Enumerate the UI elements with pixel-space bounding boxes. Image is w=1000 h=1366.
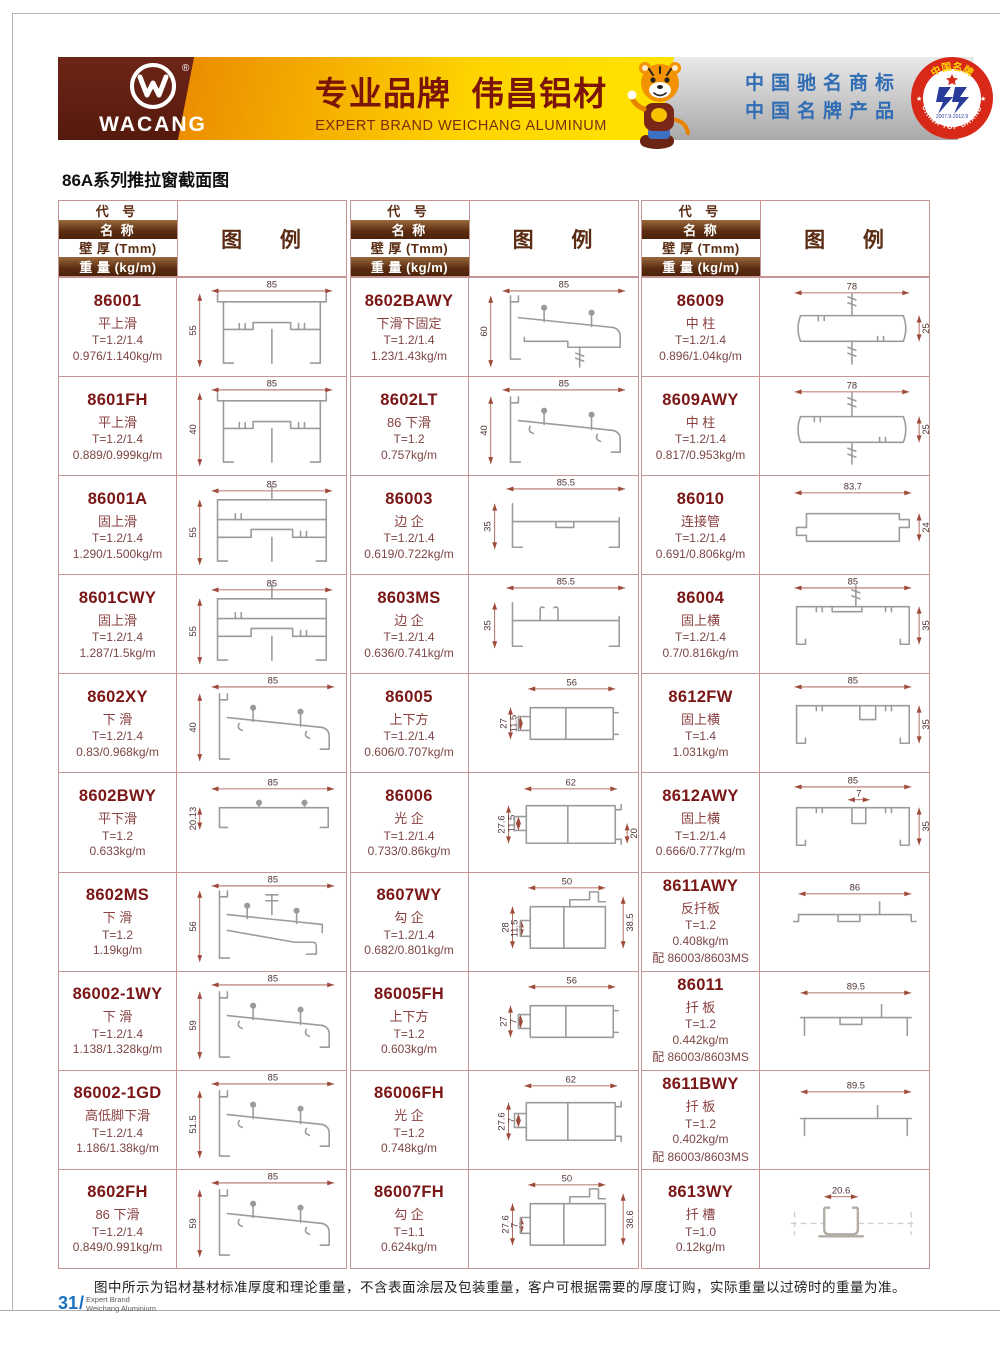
profile-row: 86009 中 柱 T=1.2/1.4 0.896/1.04kg/m 7825: [642, 277, 929, 376]
svg-text:38.6: 38.6: [625, 1210, 635, 1228]
profile-thickness: T=1.2/1.4: [383, 531, 434, 545]
profile-name: 86 下滑: [387, 412, 431, 431]
profile-section-drawing: 562711.5: [469, 676, 637, 770]
svg-text:20.13: 20.13: [187, 806, 197, 829]
profile-info: 8602BAWY 下滑下固定 T=1.2/1.4 1.23/1.43kg/m: [351, 278, 469, 376]
profile-row: 8601FH 平上滑 T=1.2/1.4 0.889/0.999kg/m 854…: [59, 376, 346, 475]
profile-name: 86 下滑: [95, 1204, 139, 1223]
profile-info: 86010 连接管 T=1.2/1.4 0.691/0.806kg/m: [642, 476, 760, 574]
profile-diagram: 85.535: [469, 575, 638, 673]
profile-diagram: 502811.538.5: [469, 873, 638, 971]
profile-thickness: T=1.2/1.4: [675, 531, 726, 545]
profile-name: 反扦板: [681, 898, 720, 917]
svg-text:35: 35: [921, 720, 929, 730]
slogan-en: EXPERT BRAND WEICHANG ALUMINUM: [266, 118, 656, 134]
svg-text:24: 24: [921, 522, 929, 532]
profile-section-drawing: 8540: [178, 379, 346, 473]
profile-name: 下 滑: [103, 1006, 133, 1025]
badge-dates: 2007.9-2012.9: [936, 114, 968, 120]
profile-code: 86004: [677, 589, 724, 608]
profile-thickness: T=1.2/1.4: [383, 928, 434, 942]
profile-code: 8611BWY: [662, 1075, 738, 1094]
profile-diagram: 8559: [177, 972, 346, 1070]
svg-text:59: 59: [187, 1218, 197, 1228]
header-code-label: 代 号: [59, 201, 177, 220]
profile-weight: 0.691/0.806kg/m: [656, 547, 745, 561]
profile-weight: 1.19kg/m: [93, 943, 142, 957]
profile-weight: 0.733/0.86kg/m: [368, 844, 451, 858]
profile-section-drawing: 85.535: [469, 478, 637, 572]
svg-text:62: 62: [566, 777, 576, 787]
profile-weight: 0.748kg/m: [381, 1141, 437, 1155]
profile-name: 扦 板: [686, 997, 716, 1016]
header-thickness-label: 壁 厚 (Tmm): [351, 239, 469, 258]
profile-diagram: 8555: [177, 278, 346, 376]
profile-thickness: T=1.2/1.4: [383, 333, 434, 347]
profile-diagram: 85.535: [469, 476, 638, 574]
profile-weight: 0.83/0.968kg/m: [76, 745, 159, 759]
profile-info: 8602FH 86 下滑 T=1.2/1.4 0.849/0.991kg/m: [59, 1170, 177, 1268]
slogan-cn: 专业品牌 伟昌铝材: [266, 67, 656, 115]
profile-weight: 0.624kg/m: [381, 1240, 437, 1254]
svg-text:89.5: 89.5: [846, 1080, 864, 1090]
svg-text:27.6: 27.6: [497, 815, 507, 833]
header-thickness-label: 壁 厚 (Tmm): [642, 239, 760, 258]
profile-code: 8602XY: [87, 688, 148, 707]
header-name-label: 名 称: [59, 220, 177, 239]
footer-brand-line1: Expert Brand: [86, 1295, 130, 1304]
profile-thickness: T=1.2/1.4: [92, 333, 143, 347]
svg-text:50: 50: [562, 876, 572, 886]
profile-section-drawing: 89.5: [761, 1073, 929, 1167]
profile-diagram: 86: [760, 873, 929, 971]
wacang-logo: ® WACANG: [78, 61, 228, 137]
profile-info: 8602MS 下 滑 T=1.2 1.19kg/m: [59, 873, 177, 971]
svg-text:86: 86: [849, 882, 859, 892]
svg-text:85.5: 85.5: [557, 478, 575, 487]
page-frame-left: [12, 13, 13, 1310]
brand-banner: ® WACANG 专业品牌 伟昌铝材 EXPERT BRAND WEICHANG…: [58, 57, 930, 140]
profile-section-drawing: 8520.13: [178, 776, 346, 870]
profile-diagram: 56277: [469, 972, 638, 1070]
profile-info: 86007FH 勾 企 T=1.1 0.624kg/m: [351, 1170, 469, 1268]
profile-diagram: 5027.6738.6: [469, 1170, 638, 1268]
profile-weight: 0.402kg/m: [672, 1132, 728, 1146]
profile-name: 上下方: [389, 1006, 428, 1025]
profile-diagram: 8535: [760, 674, 929, 772]
profile-code: 86011: [677, 976, 723, 995]
profile-diagram: 8551.5: [177, 1071, 346, 1169]
profile-info: 86001 平上滑 T=1.2/1.4 0.976/1.140kg/m: [59, 278, 177, 376]
profile-row: 8611AWY 反扦板 T=1.2 0.408kg/m 配 86003/8603…: [642, 872, 929, 971]
profile-info: 8607WY 勾 企 T=1.2/1.4 0.682/0.801kg/m: [351, 873, 469, 971]
profile-info: 8612AWY 固上横 T=1.2/1.4 0.666/0.777kg/m: [642, 773, 760, 871]
profile-thickness: T=1.2/1.4: [675, 829, 726, 843]
profile-code: 86005: [385, 688, 432, 707]
profile-section-drawing: 20.6: [761, 1172, 929, 1266]
svg-text:60: 60: [479, 326, 489, 336]
profile-thickness: T=1.2/1.4: [92, 531, 143, 545]
profile-weight: 0.666/0.777kg/m: [656, 844, 745, 858]
footer-brand-line2: Weichang Aluminium: [86, 1304, 156, 1313]
profile-thickness: T=1.2/1.4: [383, 729, 434, 743]
profile-name: 平上滑: [98, 412, 137, 431]
profile-info: 8602BWY 平下滑 T=1.2 0.633kg/m: [59, 773, 177, 871]
profile-diagram: 89.5: [760, 1071, 929, 1169]
profile-thickness: T=1.2: [393, 1126, 424, 1140]
profile-info: 86006 光 企 T=1.2/1.4 0.733/0.86kg/m: [351, 773, 469, 871]
profile-weight: 0.976/1.140kg/m: [73, 349, 162, 363]
profile-name: 边 企: [394, 511, 424, 530]
profile-info: 8611BWY 扦 板 T=1.2 0.402kg/m 配 86003/8603…: [642, 1071, 760, 1169]
profile-name: 中 柱: [686, 412, 716, 431]
svg-text:55: 55: [187, 325, 197, 335]
profile-thickness: T=1.1: [393, 1225, 424, 1239]
footer-note: 图中所示为铝材基材标准厚度和理论重量，不含表面涂层及包装重量，客户可根据需要的厚…: [0, 1276, 1000, 1296]
svg-text:78: 78: [846, 281, 856, 291]
profile-info: 8603MS 边 企 T=1.2/1.4 0.636/0.741kg/m: [351, 575, 469, 673]
profile-diagram: 8556: [177, 873, 346, 971]
svg-text:20.6: 20.6: [831, 1185, 849, 1195]
profile-row: 86004 固上横 T=1.2/1.4 0.7/0.816kg/m 8535: [642, 574, 929, 673]
profile-code: 8609AWY: [662, 391, 738, 410]
svg-text:7: 7: [856, 788, 861, 798]
header-thickness-label: 壁 厚 (Tmm): [59, 239, 177, 258]
profile-diagram: 6227.67: [469, 1071, 638, 1169]
svg-text:40: 40: [187, 424, 197, 434]
profile-info: 86002-1GD 高低脚下滑 T=1.2/1.4 1.186/1.38kg/m: [59, 1071, 177, 1169]
svg-text:20: 20: [629, 828, 637, 838]
profile-row: 8602XY 下 滑 T=1.2/1.4 0.83/0.968kg/m 8540: [59, 673, 346, 772]
profile-thickness: T=1.2: [393, 1027, 424, 1041]
profile-code: 8602MS: [86, 886, 149, 905]
svg-text:85.5: 85.5: [557, 577, 575, 586]
profile-diagram: 8555: [177, 575, 346, 673]
svg-text:27: 27: [499, 1016, 509, 1026]
svg-text:85: 85: [267, 875, 277, 884]
profile-row: 8602LT 86 下滑 T=1.2 0.757kg/m 8540: [351, 376, 638, 475]
page-number-block: 31 / Expert Brand Weichang Aluminium: [58, 1294, 156, 1313]
profile-code: 86009: [677, 292, 724, 311]
profile-code: 8607WY: [376, 886, 441, 905]
profile-section-drawing: 502811.538.5: [469, 875, 637, 969]
profile-match: 配 86003/8603MS: [652, 949, 749, 966]
svg-text:85: 85: [267, 974, 277, 983]
profile-thickness: T=1.2/1.4: [92, 729, 143, 743]
profile-thickness: T=1.2/1.4: [675, 432, 726, 446]
profile-code: 86003: [385, 490, 432, 509]
profile-code: 86010: [677, 490, 724, 509]
profile-thickness: T=1.2: [102, 829, 133, 843]
profile-diagram: 20.6: [760, 1170, 929, 1268]
svg-text:35: 35: [483, 621, 493, 631]
honor-line2: 中国名牌产品: [714, 98, 932, 126]
svg-text:55: 55: [187, 527, 197, 537]
svg-text:56: 56: [567, 678, 577, 688]
profile-section-drawing: 7825: [761, 280, 929, 374]
header-weight-label: 重 量 (kg/m): [642, 257, 760, 276]
wacang-logo-icon: [78, 61, 228, 111]
svg-text:85: 85: [559, 280, 569, 289]
profile-row: 8602BAWY 下滑下固定 T=1.2/1.4 1.23/1.43kg/m 8…: [351, 277, 638, 376]
profile-section-drawing: 85.535: [469, 577, 637, 671]
profile-section-drawing: 8540: [469, 379, 637, 473]
svg-text:62: 62: [566, 1074, 576, 1084]
profile-info: 8611AWY 反扦板 T=1.2 0.408kg/m 配 86003/8603…: [642, 873, 760, 971]
profile-row: 86003 边 企 T=1.2/1.4 0.619/0.722kg/m 85.5…: [351, 475, 638, 574]
svg-text:38.5: 38.5: [625, 913, 635, 931]
profile-info: 86004 固上横 T=1.2/1.4 0.7/0.816kg/m: [642, 575, 760, 673]
profile-table: 代 号 名 称 壁 厚 (Tmm) 重 量 (kg/m) 图 例 86001 平…: [58, 200, 347, 1269]
profile-info: 8609AWY 中 柱 T=1.2/1.4 0.817/0.953kg/m: [642, 377, 760, 475]
profile-tables: 代 号 名 称 壁 厚 (Tmm) 重 量 (kg/m) 图 例 86001 平…: [58, 200, 930, 1269]
profile-weight: 0.633kg/m: [89, 844, 145, 858]
svg-text:78: 78: [846, 381, 856, 391]
profile-row: 8602BWY 平下滑 T=1.2 0.633kg/m 8520.13: [59, 772, 346, 871]
profile-code: 8603MS: [377, 589, 440, 608]
profile-row: 8603MS 边 企 T=1.2/1.4 0.636/0.741kg/m 85.…: [351, 574, 638, 673]
profile-thickness: T=1.2/1.4: [383, 630, 434, 644]
profile-info: 86005 上下方 T=1.2/1.4 0.606/0.707kg/m: [351, 674, 469, 772]
profile-row: 86006 光 企 T=1.2/1.4 0.733/0.86kg/m 6227.…: [351, 772, 638, 871]
profile-name: 扦 槽: [686, 1204, 716, 1223]
profile-section-drawing: 8560: [469, 280, 637, 374]
profile-thickness: T=1.2: [685, 918, 716, 932]
profile-info: 86006FH 光 企 T=1.2 0.748kg/m: [351, 1071, 469, 1169]
profile-thickness: T=1.2/1.4: [92, 432, 143, 446]
profile-code: 86007FH: [374, 1183, 444, 1202]
profile-row: 86001A 固上滑 T=1.2/1.4 1.290/1.500kg/m 855…: [59, 475, 346, 574]
svg-text:85: 85: [266, 379, 276, 388]
header-legend-label: 图 例: [761, 201, 929, 276]
profile-code: 86002-1GD: [73, 1084, 161, 1103]
profile-weight: 1.23/1.43kg/m: [371, 349, 447, 363]
page-frame-top: [12, 13, 1000, 14]
profile-name: 固上滑: [98, 610, 137, 629]
profile-row: 8612FW 固上横 T=1.4 1.031kg/m 8535: [642, 673, 929, 772]
profile-name: 光 企: [394, 808, 424, 827]
profile-section-drawing: 85735: [761, 776, 929, 870]
profile-weight: 0.442kg/m: [672, 1033, 728, 1047]
honor-line1: 中国驰名商标: [714, 70, 932, 98]
svg-text:85: 85: [267, 1073, 277, 1082]
profile-name: 下滑下固定: [376, 313, 441, 332]
profile-section-drawing: 7825: [761, 379, 929, 473]
profile-row: 86005FH 上下方 T=1.2 0.603kg/m 56277: [351, 971, 638, 1070]
profile-code: 86006: [385, 787, 432, 806]
svg-text:85: 85: [847, 776, 857, 785]
profile-diagram: 8540: [177, 674, 346, 772]
profile-row: 8613WY 扦 槽 T=1.0 0.12kg/m 20.6: [642, 1169, 929, 1268]
profile-code: 8611AWY: [663, 877, 738, 896]
profile-row: 86011 扦 板 T=1.2 0.442kg/m 配 86003/8603MS…: [642, 971, 929, 1070]
profile-info: 86003 边 企 T=1.2/1.4 0.619/0.722kg/m: [351, 476, 469, 574]
profile-row: 8609AWY 中 柱 T=1.2/1.4 0.817/0.953kg/m 78…: [642, 376, 929, 475]
profile-section-drawing: 8535: [761, 676, 929, 770]
profile-name: 边 企: [394, 610, 424, 629]
svg-text:27.6: 27.6: [497, 1112, 507, 1130]
svg-text:★: ★: [916, 95, 922, 103]
profile-diagram: 8559: [177, 1170, 346, 1268]
header-weight-label: 重 量 (kg/m): [351, 257, 469, 276]
profile-weight: 0.849/0.991kg/m: [73, 1240, 162, 1254]
svg-text:89.5: 89.5: [846, 981, 864, 991]
profile-section-drawing: 8555: [178, 280, 346, 374]
svg-text:25: 25: [921, 424, 929, 434]
profile-row: 8602MS 下 滑 T=1.2 1.19kg/m 8556: [59, 872, 346, 971]
profile-row: 86005 上下方 T=1.2/1.4 0.606/0.707kg/m 5627…: [351, 673, 638, 772]
svg-text:35: 35: [921, 621, 929, 631]
profile-thickness: T=1.2: [685, 1017, 716, 1031]
profile-section-drawing: 8540: [178, 676, 346, 770]
profile-weight: 0.7/0.816kg/m: [662, 646, 738, 660]
profile-thickness: T=1.2/1.4: [92, 1126, 143, 1140]
profile-code: 8602BAWY: [365, 292, 454, 311]
profile-info: 86002-1WY 下 滑 T=1.2/1.4 1.138/1.328kg/m: [59, 972, 177, 1070]
profile-thickness: T=1.2/1.4: [92, 1225, 143, 1239]
svg-text:7: 7: [508, 1019, 518, 1024]
profile-diagram: 8540: [177, 377, 346, 475]
svg-text:55: 55: [187, 627, 197, 637]
profile-thickness: T=1.0: [685, 1225, 716, 1239]
profile-name: 固上横: [681, 808, 720, 827]
profile-thickness: T=1.2/1.4: [92, 630, 143, 644]
svg-text:85: 85: [267, 777, 277, 787]
svg-text:11.5: 11.5: [508, 715, 518, 733]
svg-text:56: 56: [187, 921, 197, 931]
header-name-label: 名 称: [642, 220, 760, 239]
profile-name: 固上滑: [98, 511, 137, 530]
profile-thickness: T=1.2/1.4: [675, 333, 726, 347]
profile-section-drawing: 5027.6738.6: [469, 1172, 637, 1266]
profile-name: 高低脚下滑: [85, 1105, 150, 1124]
profile-weight: 0.817/0.953kg/m: [656, 448, 745, 462]
profile-name: 固上横: [681, 709, 720, 728]
svg-text:83.7: 83.7: [843, 482, 861, 492]
page-number-slash: /: [79, 1294, 84, 1312]
profile-info: 8602XY 下 滑 T=1.2/1.4 0.83/0.968kg/m: [59, 674, 177, 772]
svg-text:59: 59: [187, 1020, 197, 1030]
profile-weight: 0.408kg/m: [672, 934, 728, 948]
profile-name: 下 滑: [103, 709, 133, 728]
profile-diagram: 8520.13: [177, 773, 346, 871]
svg-text:35: 35: [483, 521, 493, 531]
profile-info: 86011 扦 板 T=1.2 0.442kg/m 配 86003/8603MS: [642, 972, 760, 1070]
footer-brand: Expert Brand Weichang Aluminium: [86, 1294, 156, 1313]
profile-weight: 1.031kg/m: [672, 745, 728, 759]
profile-row: 8612AWY 固上横 T=1.2/1.4 0.666/0.777kg/m 85…: [642, 772, 929, 871]
tiger-mascot-icon: [624, 57, 696, 158]
profile-thickness: T=1.2/1.4: [383, 829, 434, 843]
profile-name: 扦 板: [686, 1096, 716, 1115]
profile-section-drawing: 8555: [178, 577, 346, 671]
profile-name: 光 企: [394, 1105, 424, 1124]
profile-row: 86002-1GD 高低脚下滑 T=1.2/1.4 1.186/1.38kg/m…: [59, 1070, 346, 1169]
profile-thickness: T=1.2: [102, 928, 133, 942]
profile-code: 8601FH: [87, 391, 148, 410]
profile-code: 86006FH: [374, 1084, 444, 1103]
svg-text:★: ★: [980, 95, 986, 103]
profile-diagram: 6227.611.520: [469, 773, 638, 871]
svg-text:40: 40: [187, 723, 197, 733]
profile-thickness: T=1.2: [393, 432, 424, 446]
profile-name: 上下方: [389, 709, 428, 728]
profile-row: 86002-1WY 下 滑 T=1.2/1.4 1.138/1.328kg/m …: [59, 971, 346, 1070]
profile-section-drawing: 6227.67: [469, 1073, 637, 1167]
profile-weight: 1.186/1.38kg/m: [76, 1141, 159, 1155]
profile-name: 勾 企: [394, 1204, 424, 1223]
header-legend-label: 图 例: [470, 201, 638, 276]
profile-section-drawing: 8556: [178, 875, 346, 969]
profile-row: 86001 平上滑 T=1.2/1.4 0.976/1.140kg/m 8555: [59, 277, 346, 376]
profile-row: 8607WY 勾 企 T=1.2/1.4 0.682/0.801kg/m 502…: [351, 872, 638, 971]
profile-weight: 0.636/0.741kg/m: [364, 646, 453, 660]
profile-row: 8611BWY 扦 板 T=1.2 0.402kg/m 配 86003/8603…: [642, 1070, 929, 1169]
profile-code: 8612FW: [668, 688, 732, 707]
profile-code: 8602BWY: [79, 787, 156, 806]
profile-weight: 0.896/1.04kg/m: [659, 349, 742, 363]
profile-diagram: 83.724: [760, 476, 929, 574]
profile-weight: 0.889/0.999kg/m: [73, 448, 162, 462]
profile-code: 8601CWY: [79, 589, 156, 608]
profile-name: 连接管: [681, 511, 720, 530]
profile-weight: 0.619/0.722kg/m: [364, 547, 453, 561]
svg-text:25: 25: [921, 323, 929, 333]
table-header: 代 号 名 称 壁 厚 (Tmm) 重 量 (kg/m) 图 例: [351, 201, 638, 277]
profile-thickness: T=1.4: [685, 729, 716, 743]
profile-weight: 0.682/0.801kg/m: [364, 943, 453, 957]
profile-section-drawing: 8559: [178, 1172, 346, 1266]
profile-row: 8602FH 86 下滑 T=1.2/1.4 0.849/0.991kg/m 8…: [59, 1169, 346, 1268]
profile-weight: 1.290/1.500kg/m: [73, 547, 162, 561]
table-header: 代 号 名 称 壁 厚 (Tmm) 重 量 (kg/m) 图 例: [59, 201, 346, 277]
profile-thickness: T=1.2: [685, 1117, 716, 1131]
page-number: 31: [58, 1294, 78, 1312]
profile-info: 86001A 固上滑 T=1.2/1.4 1.290/1.500kg/m: [59, 476, 177, 574]
profile-section-drawing: 56277: [469, 974, 637, 1068]
header-code-label: 代 号: [351, 201, 469, 220]
profile-weight: 0.603kg/m: [381, 1042, 437, 1056]
svg-text:85: 85: [847, 676, 857, 685]
header-legend-label: 图 例: [178, 201, 346, 276]
profile-match: 配 86003/8603MS: [652, 1148, 749, 1165]
svg-text:85: 85: [267, 676, 277, 685]
profile-code: 8613WY: [668, 1183, 733, 1202]
svg-text:56: 56: [567, 975, 577, 985]
profile-code: 8602LT: [380, 391, 437, 410]
profile-info: 86005FH 上下方 T=1.2 0.603kg/m: [351, 972, 469, 1070]
profile-match: 配 86003/8603MS: [652, 1048, 749, 1065]
profile-diagram: 8540: [469, 377, 638, 475]
profile-diagram: 8560: [469, 278, 638, 376]
profile-name: 平下滑: [98, 808, 137, 827]
svg-text:27: 27: [499, 719, 509, 729]
header-code-label: 代 号: [642, 201, 760, 220]
profile-code: 86002-1WY: [73, 985, 163, 1004]
profile-info: 8612FW 固上横 T=1.4 1.031kg/m: [642, 674, 760, 772]
profile-info: 8601CWY 固上滑 T=1.2/1.4 1.287/1.5kg/m: [59, 575, 177, 673]
svg-text:51.5: 51.5: [187, 1115, 197, 1133]
profile-diagram: 89.5: [760, 972, 929, 1070]
profile-diagram: 7825: [760, 278, 929, 376]
profile-diagram: 562711.5: [469, 674, 638, 772]
profile-row: 86010 连接管 T=1.2/1.4 0.691/0.806kg/m 83.7…: [642, 475, 929, 574]
header-name-label: 名 称: [351, 220, 469, 239]
profile-info: 8613WY 扦 槽 T=1.0 0.12kg/m: [642, 1170, 760, 1268]
profile-name: 下 滑: [103, 907, 133, 926]
profile-name: 固上横: [681, 610, 720, 629]
profile-code: 8612AWY: [662, 787, 738, 806]
